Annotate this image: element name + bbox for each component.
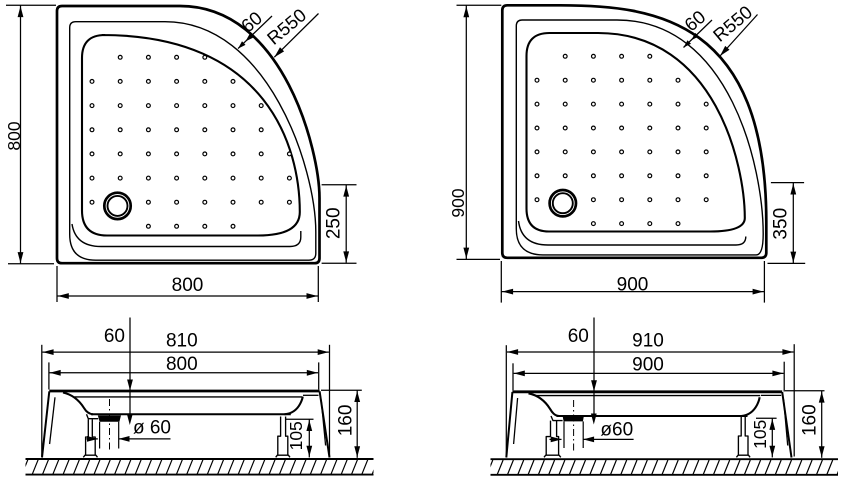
svg-text:60: 60 bbox=[568, 326, 589, 347]
svg-text:ø60: ø60 bbox=[600, 419, 633, 440]
svg-text:160: 160 bbox=[336, 405, 357, 437]
svg-text:160: 160 bbox=[800, 404, 821, 436]
svg-text:60: 60 bbox=[104, 326, 125, 347]
svg-text:800: 800 bbox=[172, 275, 204, 296]
svg-text:800: 800 bbox=[4, 121, 24, 150]
svg-text:910: 910 bbox=[632, 331, 664, 352]
svg-text:105: 105 bbox=[286, 421, 306, 450]
svg-text:900: 900 bbox=[632, 355, 664, 376]
svg-text:810: 810 bbox=[166, 331, 198, 352]
svg-text:ø 60: ø 60 bbox=[133, 418, 171, 439]
svg-text:900: 900 bbox=[617, 275, 649, 296]
svg-text:900: 900 bbox=[448, 188, 468, 217]
svg-text:800: 800 bbox=[166, 354, 198, 375]
svg-text:350: 350 bbox=[770, 208, 791, 240]
svg-text:250: 250 bbox=[324, 207, 345, 239]
svg-text:105: 105 bbox=[750, 420, 770, 449]
